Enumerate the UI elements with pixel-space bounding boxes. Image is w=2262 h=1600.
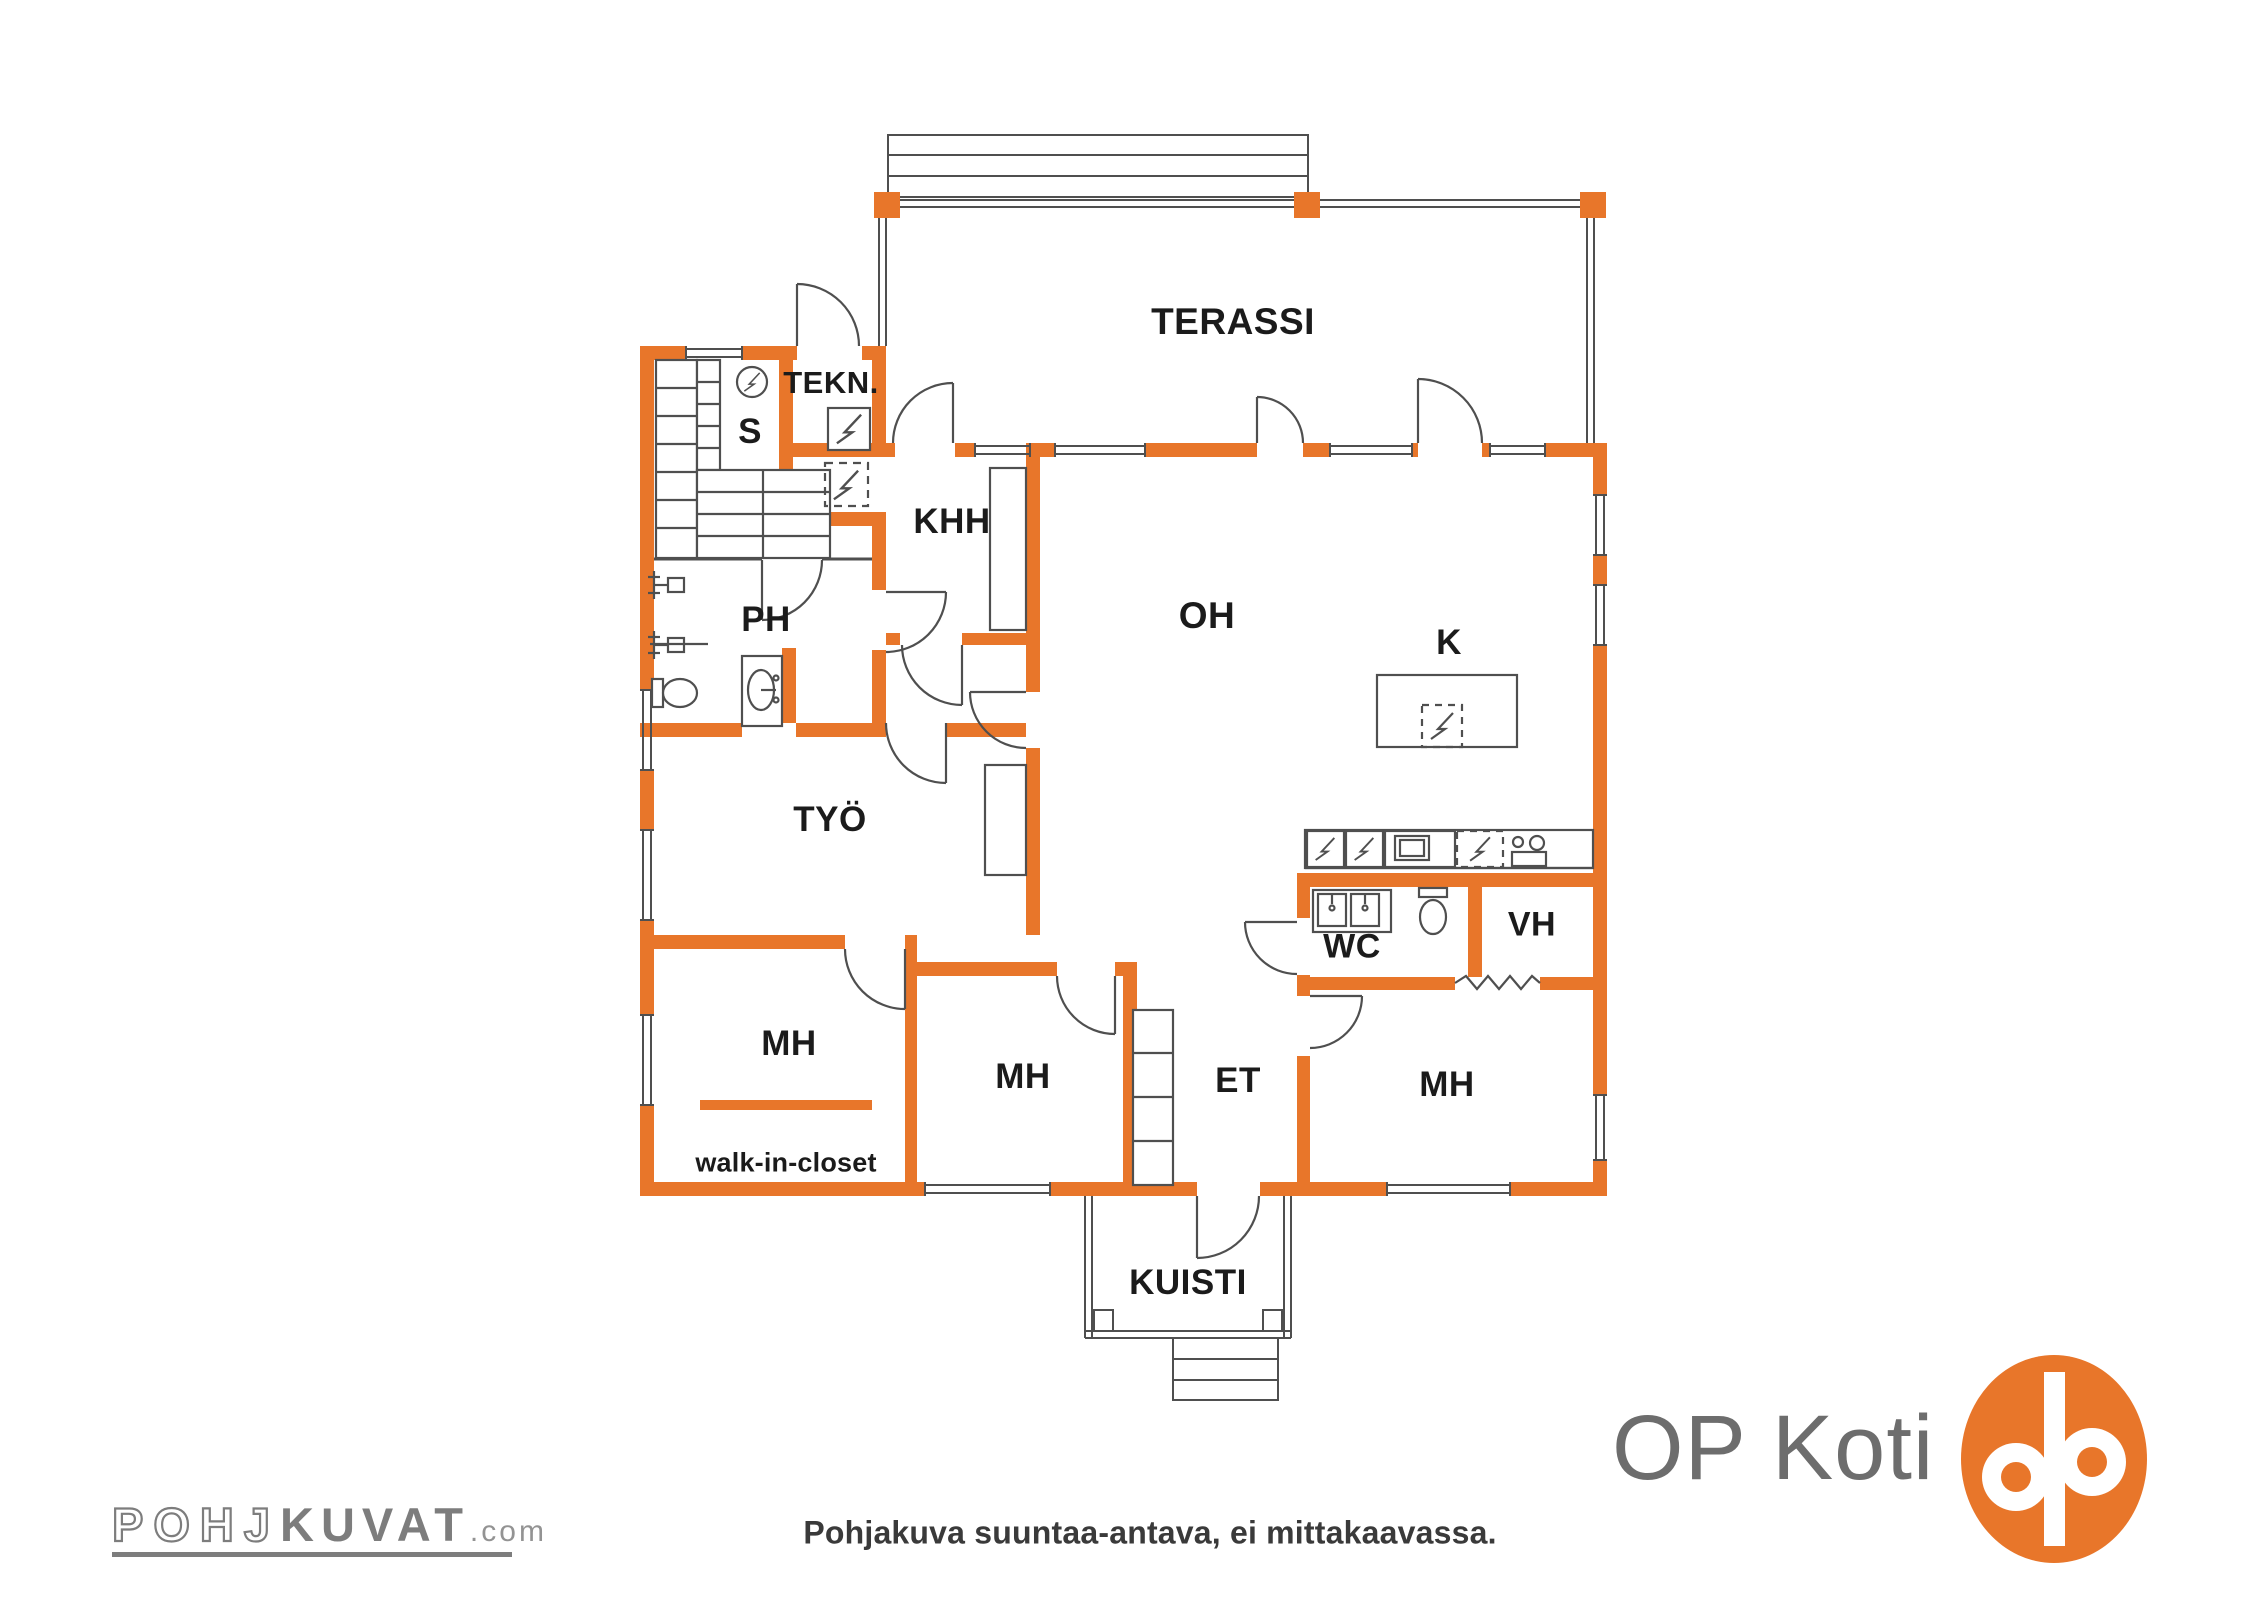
fridge-icon	[1307, 831, 1344, 867]
room-label-mh-closet: MH	[761, 1024, 816, 1064]
door-tyo	[886, 723, 946, 783]
room-label-ph: PH	[741, 600, 791, 640]
kitchen-sink-icon	[1385, 831, 1455, 867]
pohjakuvat-logo-underline	[112, 1552, 512, 1557]
door-khh-hall	[902, 645, 962, 705]
door-wc	[1245, 922, 1297, 974]
electrical-panel-icon	[828, 408, 870, 450]
room-label-tekn: TEKN.	[783, 365, 879, 401]
freezer-icon	[1346, 831, 1383, 867]
door-k-terrace	[1418, 379, 1482, 443]
pohjakuvat-logo-suffix: .com	[470, 1515, 547, 1548]
kitchen-island-icon	[1377, 675, 1517, 747]
room-label-wc: WC	[1323, 928, 1381, 967]
op-logo-icon	[1956, 1352, 2152, 1566]
kitchen-counter-icon	[1305, 830, 1593, 868]
room-label-sauna: S	[738, 412, 762, 452]
door-khh-terrace	[893, 383, 953, 443]
et-shelf-icon	[1133, 1010, 1173, 1185]
floorplan-page: TERASSI TEKN. S KHH PH OH K TYÖ WC VH MH…	[0, 0, 2262, 1600]
room-label-khh: KHH	[913, 502, 990, 542]
room-label-oh: OH	[1179, 595, 1236, 637]
door-mh-closet	[845, 949, 905, 1009]
door-oh-terrace	[1257, 397, 1303, 443]
wc-vanity-icon	[1313, 890, 1391, 932]
terrace-structure	[879, 135, 1594, 443]
room-label-et: ET	[1215, 1061, 1261, 1101]
kuisti-steps-icon	[1173, 1338, 1278, 1400]
room-label-kuisti: KUISTI	[1129, 1263, 1247, 1303]
room-label-kitchen: K	[1436, 623, 1462, 663]
clothes-rail-icon	[1455, 976, 1540, 989]
room-label-tyo: TYÖ	[793, 800, 866, 840]
room-label-vh: VH	[1508, 906, 1556, 945]
door-mh-middle	[1057, 976, 1115, 1034]
door-tekn-terrace	[797, 284, 859, 346]
op-koti-logo-text: OP Koti	[1612, 1396, 1934, 1501]
shower-icon	[648, 571, 684, 599]
terrace-deck	[888, 135, 1308, 197]
room-label-walk-in-closet: walk-in-closet	[695, 1148, 876, 1179]
pohjakuvat-logo-part1: POHJ	[112, 1501, 280, 1548]
pohjakuvat-logo: POHJ KUVAT .com	[112, 1492, 520, 1566]
disclaimer-text: Pohjakuva suuntaa-antava, ei mittakaavas…	[803, 1515, 1496, 1552]
room-label-mh-middle: MH	[995, 1057, 1050, 1097]
water-heater-icon	[825, 463, 868, 506]
sink-icon	[742, 656, 782, 726]
sauna-stove-icon	[737, 367, 767, 397]
room-label-terassi: TERASSI	[1151, 301, 1315, 343]
door-mh-right	[1310, 996, 1362, 1048]
door-kuisti	[1197, 1196, 1259, 1258]
wc-toilet-icon	[1419, 888, 1447, 934]
toilet-icon	[652, 679, 697, 707]
room-label-mh-right: MH	[1419, 1065, 1474, 1105]
khh-cabinet-icon	[990, 468, 1026, 630]
pohjakuvat-logo-part2: KUVAT	[280, 1501, 470, 1548]
floorplan-drawing	[0, 0, 2262, 1600]
tyo-closet-icon	[985, 765, 1026, 875]
door-hall-oh	[970, 692, 1026, 748]
